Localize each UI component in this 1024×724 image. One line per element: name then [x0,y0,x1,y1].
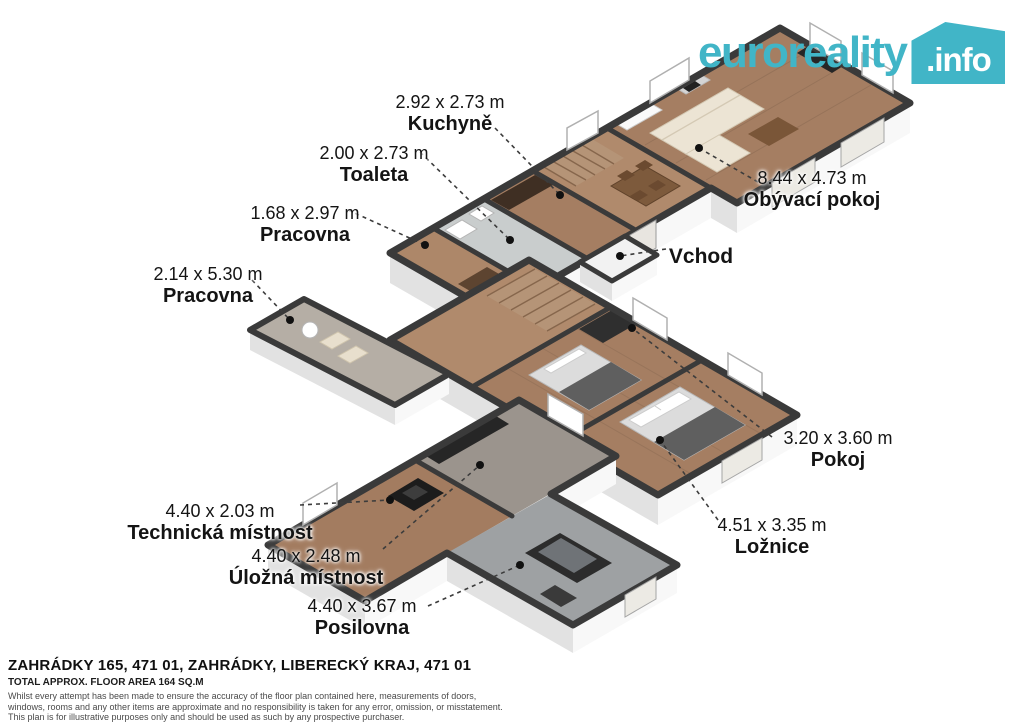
label-pokoj: 3.20 x 3.60 m Pokoj [783,428,892,472]
label-name: Pracovna [250,224,359,247]
label-name: Pokoj [783,449,892,472]
label-name: Úložná místnost [229,567,383,590]
label-name: Obývací pokoj [744,189,881,212]
property-address: ZAHRÁDKY 165, 471 01, ZAHRÁDKY, LIBERECK… [8,657,608,674]
wing-pracovna-dolni [250,299,449,425]
label-dims: 1.68 x 2.97 m [250,203,359,224]
label-name: Toaleta [319,164,428,187]
label-dims: 4.51 x 3.35 m [717,515,826,536]
total-floor-area: TOTAL APPROX. FLOOR AREA 164 SQ.M [8,677,608,688]
floorplan-page: 2.92 x 2.73 m Kuchyně 2.00 x 2.73 m Toal… [0,0,1024,724]
label-vchod: Vchod [669,245,733,269]
label-obyvaci-pokoj: 8.44 x 4.73 m Obývací pokoj [744,168,881,212]
disclaimer-line: Whilst every attempt has been made to en… [8,691,608,702]
label-dims: 4.40 x 2.48 m [229,546,383,567]
label-name: Technická místnost [127,522,312,545]
label-technicka: 4.40 x 2.03 m Technická místnost [127,501,312,545]
label-name: Posilovna [307,617,416,640]
label-pracovna-horni: 1.68 x 2.97 m Pracovna [250,203,359,247]
label-dims: 4.40 x 3.67 m [307,596,416,617]
logo: euroreality .info [698,22,1005,84]
label-dims: 2.00 x 2.73 m [319,143,428,164]
label-loznice: 4.51 x 3.35 m Ložnice [717,515,826,559]
label-kuchyne: 2.92 x 2.73 m Kuchyně [395,92,504,136]
label-dims: 2.14 x 5.30 m [153,264,262,285]
label-dims: 8.44 x 4.73 m [744,168,881,189]
label-ulozna: 4.40 x 2.48 m Úložná místnost [229,546,383,590]
floorplan-3d [0,0,1024,724]
label-dims: 3.20 x 3.60 m [783,428,892,449]
logo-brand-text: euroreality [698,22,906,84]
disclaimer: Whilst every attempt has been made to en… [8,691,608,723]
footer: ZAHRÁDKY 165, 471 01, ZAHRÁDKY, LIBERECK… [8,657,608,723]
label-posilovna: 4.40 x 3.67 m Posilovna [307,596,416,640]
boiler [302,322,318,338]
label-dims: 4.40 x 2.03 m [127,501,312,522]
logo-house-icon: .info [911,22,1005,84]
disclaimer-line: This plan is for illustrative purposes o… [8,712,608,723]
disclaimer-line: windows, rooms and any other items are a… [8,702,608,713]
label-toaleta: 2.00 x 2.73 m Toaleta [319,143,428,187]
label-name: Pracovna [153,285,262,308]
logo-tld-text: .info [926,36,991,84]
label-name: Ložnice [717,536,826,559]
label-name: Kuchyně [395,113,504,136]
label-pracovna-dolni: 2.14 x 5.30 m Pracovna [153,264,262,308]
label-dims: 2.92 x 2.73 m [395,92,504,113]
